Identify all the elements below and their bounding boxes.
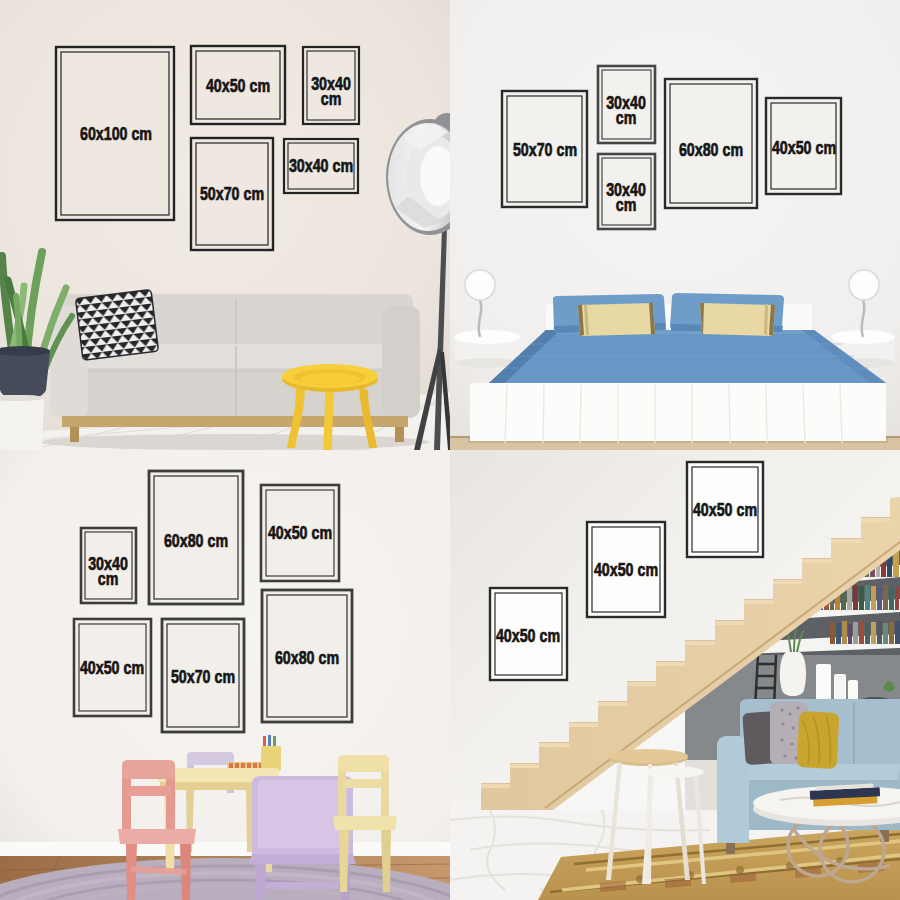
svg-text:40x50 cm: 40x50 cm bbox=[496, 625, 560, 646]
svg-text:40x50 cm: 40x50 cm bbox=[594, 559, 658, 580]
svg-text:40x50 cm: 40x50 cm bbox=[693, 499, 757, 520]
svg-text:60x80 cm: 60x80 cm bbox=[679, 139, 743, 160]
svg-text:40x50 cm: 40x50 cm bbox=[80, 657, 144, 678]
svg-text:cm: cm bbox=[616, 107, 637, 128]
svg-text:40x50 cm: 40x50 cm bbox=[268, 522, 332, 543]
svg-text:cm: cm bbox=[321, 88, 342, 109]
svg-text:cm: cm bbox=[98, 568, 119, 589]
svg-text:60x100 cm: 60x100 cm bbox=[80, 123, 152, 144]
svg-text:40x50 cm: 40x50 cm bbox=[772, 137, 836, 158]
svg-text:30x40 cm: 30x40 cm bbox=[289, 155, 353, 176]
svg-text:60x80 cm: 60x80 cm bbox=[164, 530, 228, 551]
svg-text:cm: cm bbox=[616, 194, 637, 215]
svg-text:50x70 cm: 50x70 cm bbox=[200, 183, 264, 204]
svg-text:40x50 cm: 40x50 cm bbox=[206, 75, 270, 96]
svg-text:60x80 cm: 60x80 cm bbox=[275, 647, 339, 668]
svg-text:50x70 cm: 50x70 cm bbox=[171, 666, 235, 687]
svg-text:50x70 cm: 50x70 cm bbox=[513, 139, 577, 160]
